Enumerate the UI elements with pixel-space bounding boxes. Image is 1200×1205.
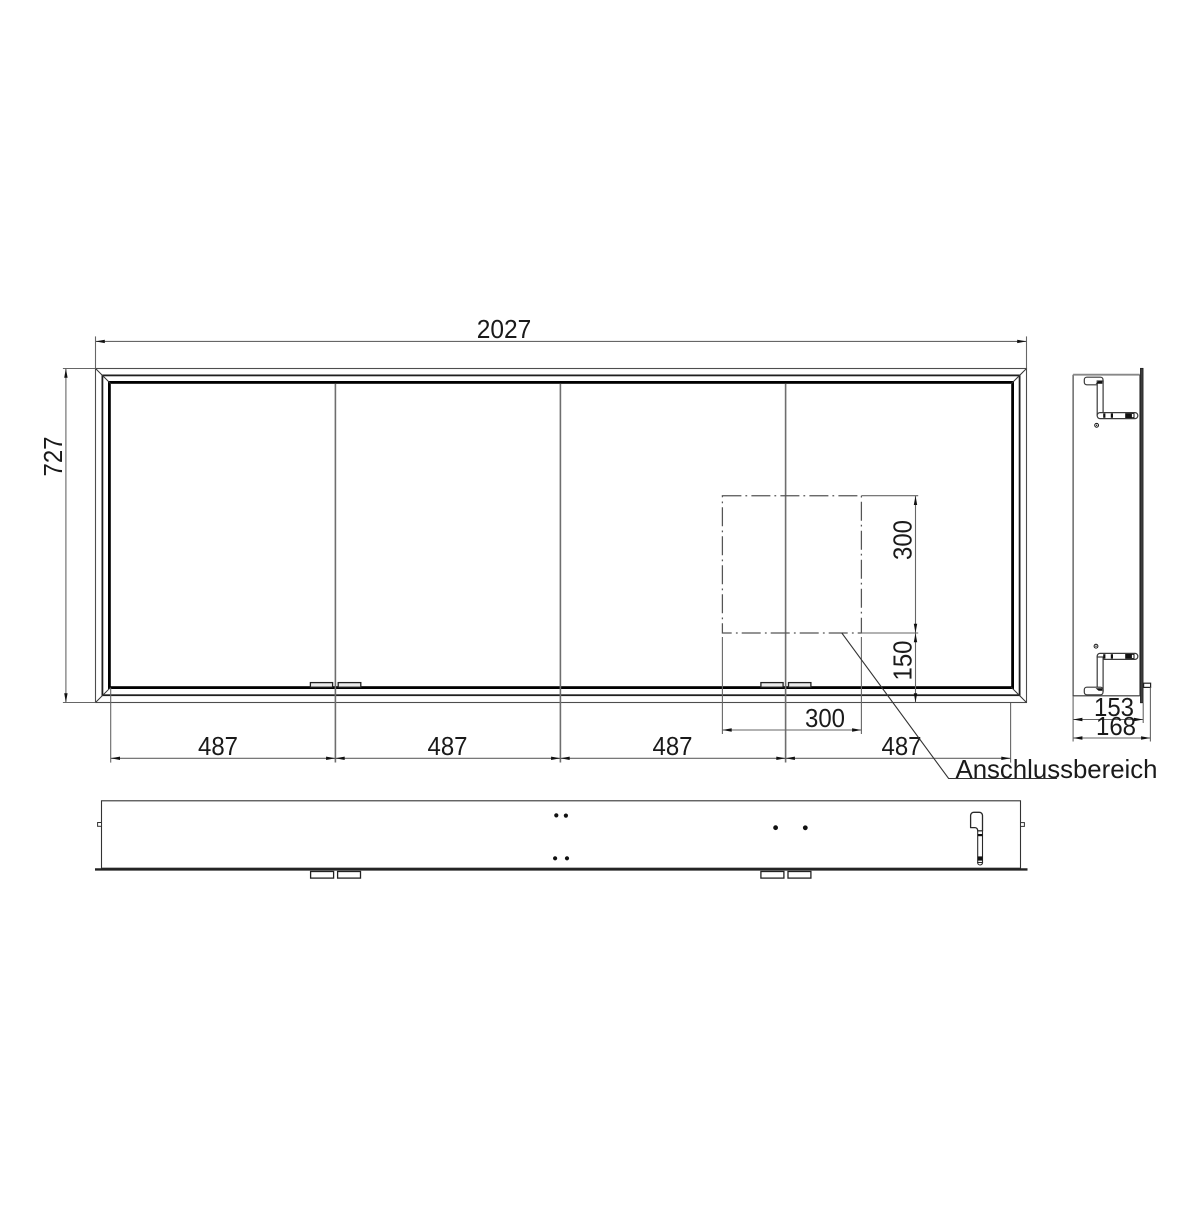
svg-text:Anschlussbereich: Anschlussbereich	[956, 754, 1158, 784]
svg-text:727: 727	[38, 437, 68, 477]
svg-text:150: 150	[888, 641, 918, 681]
svg-text:168: 168	[1096, 711, 1136, 741]
svg-text:487: 487	[882, 731, 922, 761]
svg-text:487: 487	[428, 731, 468, 761]
svg-text:2027: 2027	[477, 314, 532, 344]
svg-text:300: 300	[805, 703, 845, 733]
svg-text:487: 487	[653, 731, 693, 761]
svg-text:487: 487	[198, 731, 238, 761]
svg-text:300: 300	[888, 520, 918, 560]
